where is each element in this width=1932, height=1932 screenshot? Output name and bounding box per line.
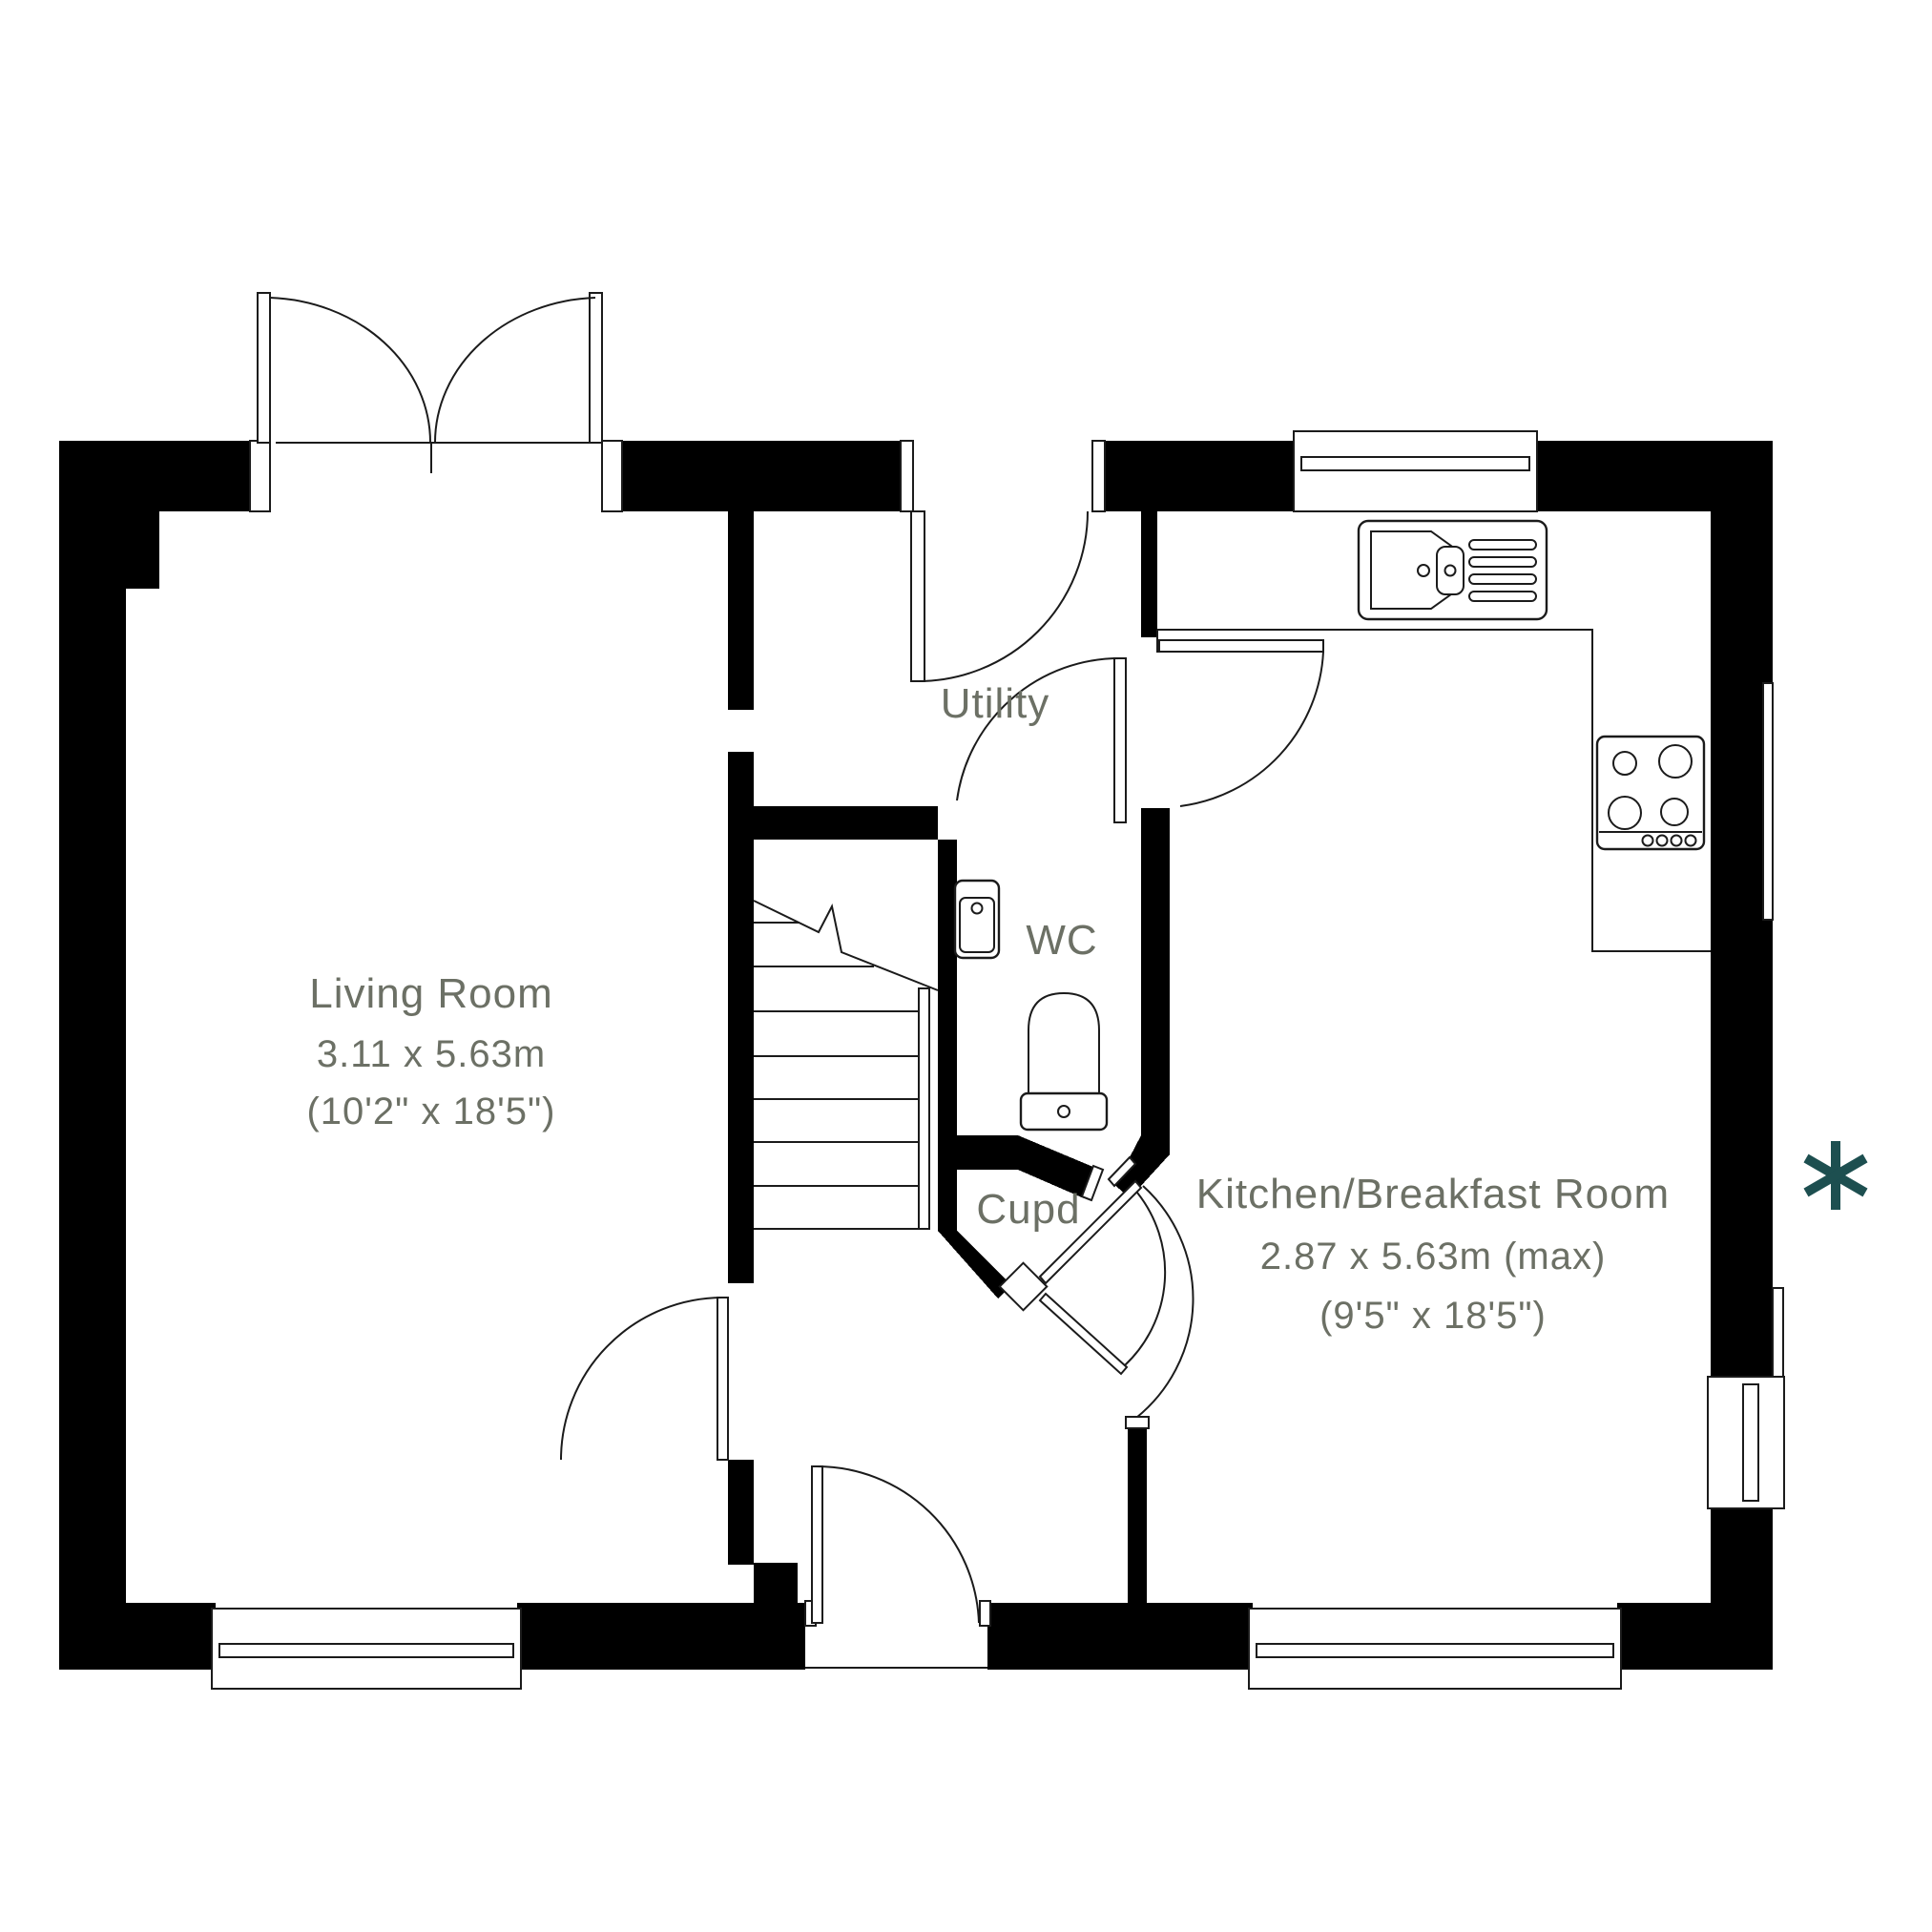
kitchen-bottom-window (1249, 1609, 1621, 1689)
meter-box (1773, 1288, 1783, 1381)
kitchen-top-window (1294, 431, 1537, 511)
utility-label: Utility (941, 680, 1050, 727)
cupd-label: Cupd (976, 1186, 1080, 1233)
kitchen-label: Kitchen/Breakfast Room (1196, 1171, 1670, 1217)
patio-french-doors (250, 293, 622, 511)
living-room-dims-metric: 3.11 x 5.63m (317, 1033, 546, 1075)
toilet-icon (1021, 993, 1107, 1130)
kitchen-side-window (1708, 1377, 1784, 1508)
floor-plan-drawing: Living Room 3.11 x 5.63m (10'2" x 18'5")… (0, 0, 1932, 1932)
wall-recess (728, 710, 754, 752)
floor-plan-page: Living Room 3.11 x 5.63m (10'2" x 18'5")… (0, 0, 1932, 1932)
living-room-dims-imperial: (10'2" x 18'5") (306, 1091, 555, 1132)
stair-handrail (919, 988, 929, 1229)
living-room-window (212, 1609, 521, 1689)
utility-back-door (901, 441, 1105, 681)
room-labels: Living Room 3.11 x 5.63m (10'2" x 18'5")… (306, 680, 1670, 1337)
wash-basin-icon (955, 881, 999, 958)
utility-kitchen-door (1159, 640, 1323, 806)
door-hinge-post (1000, 1263, 1047, 1310)
asterisk-icon (1806, 1141, 1865, 1210)
hob-icon (1597, 737, 1704, 849)
stair-break-line (754, 901, 938, 990)
staircase (754, 901, 938, 1229)
living-room-door (561, 1298, 728, 1460)
wc-label: WC (1026, 917, 1097, 964)
kitchen-dims-metric: 2.87 x 5.63m (max) (1260, 1236, 1607, 1278)
living-room-label: Living Room (309, 970, 553, 1017)
kitchen-sink-icon (1359, 521, 1547, 619)
front-door (805, 1466, 990, 1668)
kitchen-dims-imperial: (9'5" x 18'5") (1319, 1295, 1547, 1337)
right-wall-recess (1763, 683, 1773, 920)
